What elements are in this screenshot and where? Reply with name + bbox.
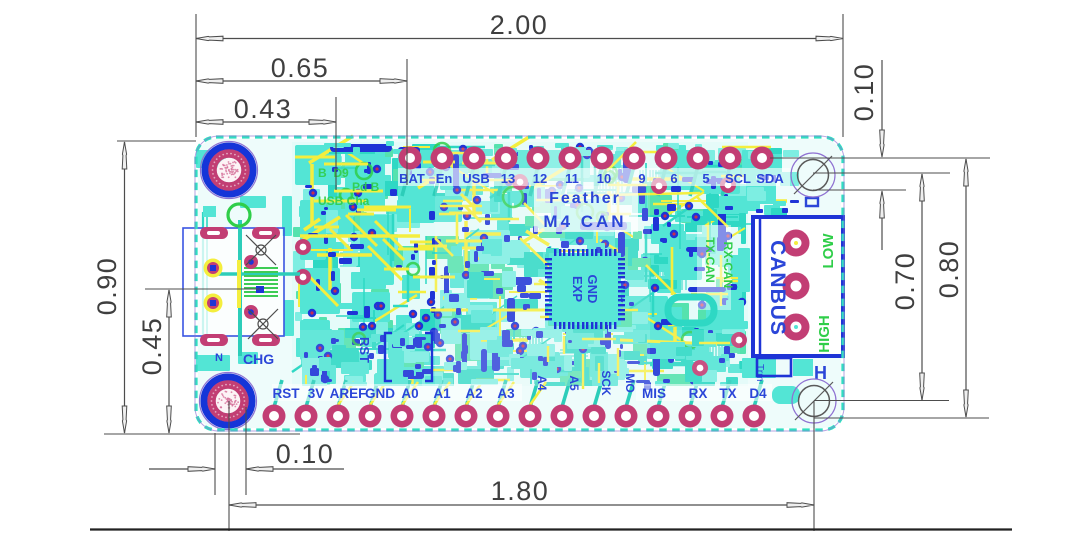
svg-text:10: 10	[597, 171, 611, 186]
svg-text:SCK: SCK	[599, 370, 613, 396]
svg-text:12: 12	[533, 171, 547, 186]
svg-text:RX-CAN: RX-CAN	[721, 242, 735, 289]
svg-text:11: 11	[565, 171, 579, 186]
svg-text:0.90: 0.90	[92, 257, 122, 316]
svg-text:0.65: 0.65	[271, 53, 330, 83]
svg-text:1.80: 1.80	[491, 476, 550, 506]
svg-text:LOW: LOW	[820, 233, 837, 269]
svg-text:MO: MO	[623, 373, 637, 392]
svg-text:TX: TX	[719, 386, 736, 401]
svg-text:A1: A1	[433, 386, 451, 401]
svg-text:9: 9	[638, 171, 645, 186]
svg-text:A4: A4	[535, 375, 549, 391]
svg-text:0.80: 0.80	[934, 240, 964, 299]
svg-text:2.00: 2.00	[490, 10, 549, 40]
svg-text:En: En	[436, 171, 453, 186]
svg-text:N: N	[215, 352, 223, 364]
svg-text:GND: GND	[585, 275, 600, 304]
svg-text:0.43: 0.43	[234, 94, 293, 124]
svg-text:B D9: B D9	[318, 166, 349, 180]
svg-text:A2: A2	[465, 386, 482, 401]
svg-text:RX: RX	[689, 386, 708, 401]
svg-text:SCL: SCL	[725, 171, 751, 186]
svg-text:Pd B: Pd B	[352, 180, 380, 194]
svg-text:MIS: MIS	[642, 386, 666, 401]
svg-text:CANBUS: CANBUS	[766, 240, 789, 336]
svg-text:13: 13	[501, 171, 515, 186]
svg-text:CHG: CHG	[243, 351, 274, 367]
svg-text:TX-CAN: TX-CAN	[703, 237, 717, 282]
svg-text:RST: RST	[273, 386, 301, 401]
svg-text:RST: RST	[357, 337, 372, 363]
svg-text:EXP: EXP	[570, 276, 585, 302]
svg-text:6: 6	[670, 171, 677, 186]
svg-text:0.70: 0.70	[890, 252, 920, 311]
svg-text:GND: GND	[365, 386, 395, 401]
svg-text:0.10: 0.10	[276, 439, 335, 469]
svg-text:USB Cha: USB Cha	[318, 194, 370, 208]
svg-text:Feather: Feather	[549, 190, 621, 207]
svg-text:Trm: Trm	[754, 364, 765, 381]
svg-text:3V: 3V	[308, 386, 325, 401]
svg-text:A3: A3	[497, 386, 515, 401]
svg-text:5: 5	[702, 171, 709, 186]
svg-text:BAT: BAT	[399, 171, 425, 186]
svg-text:USB: USB	[462, 171, 489, 186]
svg-text:0.10: 0.10	[849, 63, 879, 122]
svg-text:A0: A0	[401, 386, 418, 401]
svg-text:A5: A5	[567, 375, 581, 391]
svg-text:0.45: 0.45	[137, 317, 167, 376]
svg-text:SDA: SDA	[756, 171, 784, 186]
svg-text:M4 CAN: M4 CAN	[543, 212, 626, 231]
svg-text:D4: D4	[749, 386, 767, 401]
svg-text:AREF: AREF	[330, 386, 367, 401]
svg-text:HIGH: HIGH	[816, 315, 833, 353]
